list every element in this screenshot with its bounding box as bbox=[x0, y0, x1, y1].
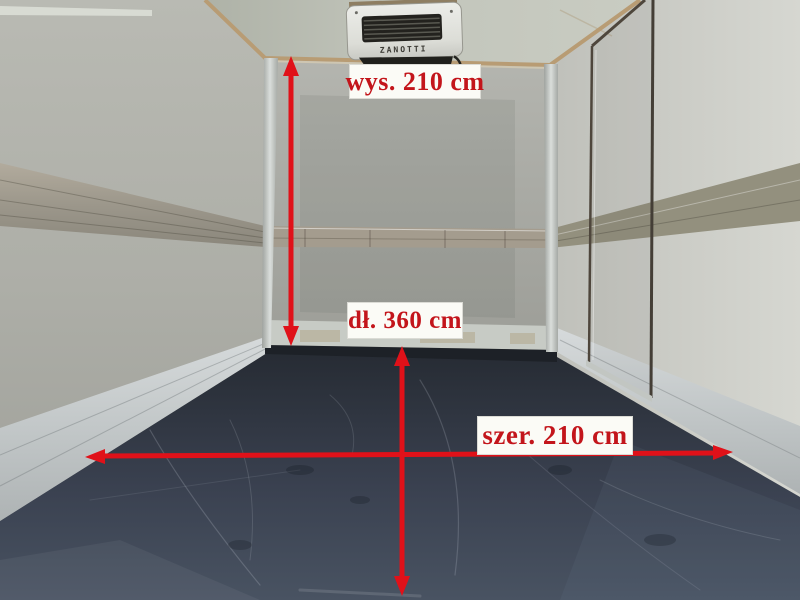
corner-trim-right bbox=[544, 64, 558, 352]
side-door-panel bbox=[589, 0, 654, 398]
cargo-interior-photo: ZANOTTI wys. 210 cm dł. 360 cm szer. 210… bbox=[0, 0, 800, 600]
height-dimension-label: wys. 210 cm bbox=[349, 64, 481, 99]
side-door-frame-front bbox=[651, 0, 653, 398]
width-dimension-label: szer. 210 cm bbox=[477, 416, 633, 455]
zanotti-logo: ZANOTTI bbox=[380, 44, 428, 55]
back-wall-panel-shading bbox=[300, 95, 515, 318]
length-dimension-label: dł. 360 cm bbox=[347, 302, 463, 339]
side-door bbox=[586, 0, 654, 402]
